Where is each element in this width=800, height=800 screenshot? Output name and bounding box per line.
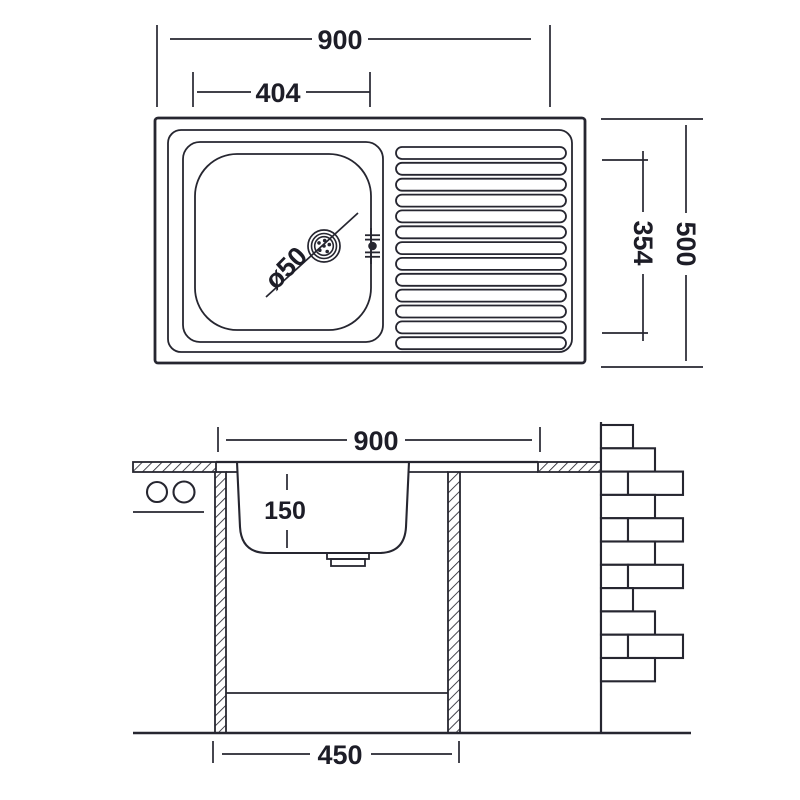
- dim-overall-depth-label: 500: [671, 221, 701, 266]
- cabinet-wall-right: [448, 472, 460, 733]
- adjacent-unit: [133, 482, 204, 513]
- drainboard-rib: [396, 195, 566, 207]
- sink-top-view: ø50 900 404: [155, 25, 703, 367]
- dim-bowl-depth: 150: [264, 474, 306, 548]
- drainboard-ribs: [396, 147, 566, 349]
- brick: [601, 495, 655, 518]
- bowl-section-outline: [237, 462, 409, 553]
- drawing-canvas: ø50 900 404: [0, 0, 800, 800]
- brick: [601, 588, 633, 611]
- brick: [601, 542, 655, 565]
- brick: [601, 611, 655, 634]
- dim-inner-depth: 354: [602, 151, 658, 341]
- bricks: [601, 425, 683, 681]
- brick: [628, 635, 683, 658]
- drainboard-rib: [396, 274, 566, 286]
- dim-cabinet-width-label: 450: [317, 740, 362, 770]
- brick: [601, 635, 628, 658]
- tap-hole-marker: [365, 228, 380, 264]
- drain-diameter-label: ø50: [259, 241, 313, 295]
- brick: [628, 565, 683, 588]
- dim-section-width: 900: [218, 426, 540, 456]
- countertop-left-section: [133, 462, 216, 472]
- countertop-right-section: [538, 462, 601, 472]
- bowl-outer-edge: [183, 142, 383, 342]
- brick: [601, 518, 628, 541]
- drainboard-rib: [396, 210, 566, 222]
- drainboard-rib: [396, 321, 566, 333]
- brick: [628, 472, 683, 495]
- drainboard-rib: [396, 290, 566, 302]
- drainboard-rib: [396, 306, 566, 318]
- sink-section-view: 900 150: [133, 422, 691, 770]
- drain-outlet: [327, 553, 369, 566]
- drainboard-rib: [396, 179, 566, 191]
- bowl-inner-edge: [195, 154, 371, 330]
- dim-top-overall-width-label: 900: [317, 25, 362, 55]
- drainboard-rib: [396, 147, 566, 159]
- drainboard-rib: [396, 258, 566, 270]
- dim-inner-depth-label: 354: [628, 220, 658, 265]
- drainboard-rib: [396, 163, 566, 175]
- cabinet-wall-left: [215, 472, 226, 733]
- drainboard-rib: [396, 226, 566, 238]
- dim-bowl-width-label: 404: [255, 78, 300, 108]
- dim-bowl-width: 404: [193, 72, 370, 108]
- brick: [601, 472, 628, 495]
- brick: [601, 658, 655, 681]
- sink-technical-drawing: ø50 900 404: [0, 0, 800, 800]
- knob-circle-left: [147, 482, 167, 502]
- knob-circle-right: [174, 482, 195, 503]
- dim-bowl-depth-label: 150: [264, 497, 306, 525]
- drainboard-rib: [396, 242, 566, 254]
- drainboard-rib: [396, 337, 566, 349]
- brick: [601, 448, 655, 471]
- brick-wall: [601, 422, 683, 733]
- brick: [601, 425, 633, 448]
- dim-top-overall-width: 900: [157, 25, 550, 107]
- brick: [628, 518, 683, 541]
- dim-cabinet-width: 450: [213, 740, 459, 770]
- dim-section-width-label: 900: [353, 426, 398, 456]
- brick: [601, 565, 628, 588]
